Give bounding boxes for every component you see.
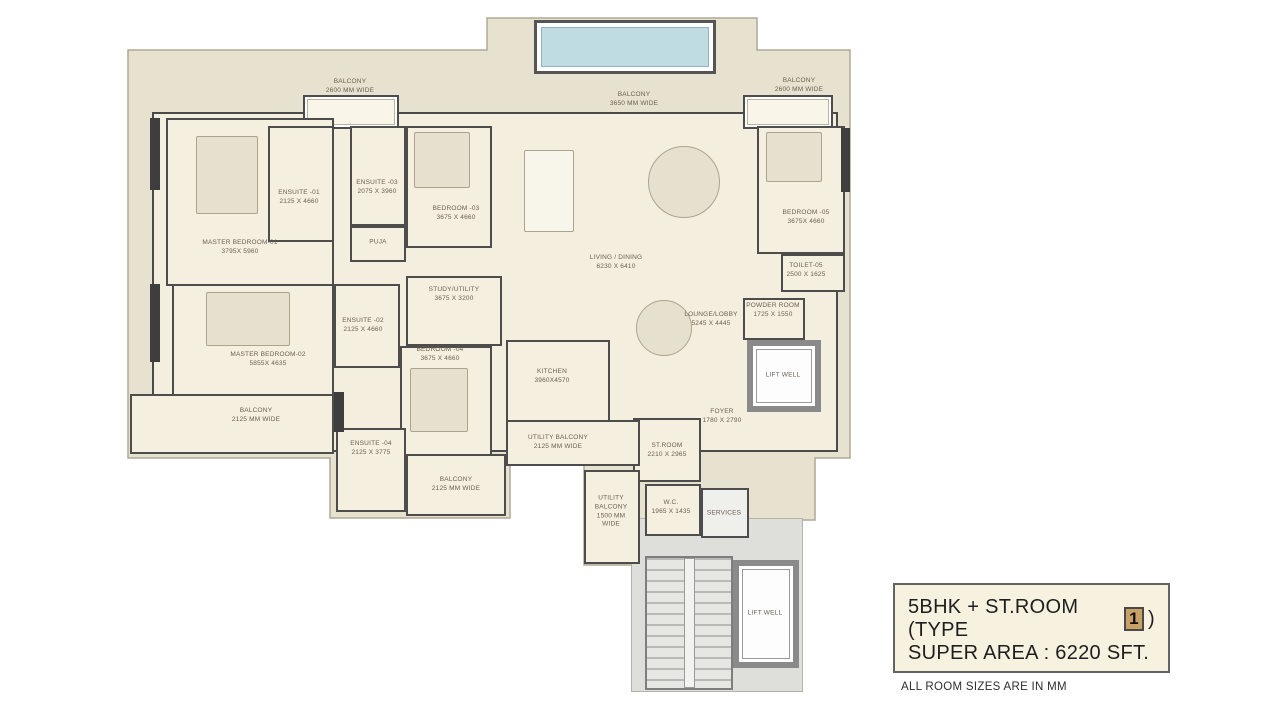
bed-icon [196, 136, 258, 214]
room-label-powder-room: POWDER ROOM1725 X 1550 [746, 302, 799, 320]
dining-table-icon [524, 150, 574, 232]
balcony-rail-top-right [743, 95, 833, 129]
room-ensuite-03 [350, 126, 406, 226]
room-label-bedroom-04: BEDROOM -043675 X 4660 [417, 346, 464, 364]
room-label-ensuite-04: ENSUITE -042125 X 3775 [350, 440, 392, 458]
sofa-icon [648, 146, 720, 218]
room-label-balcony-bottom-mid: BALCONY2125 MM WIDE [432, 476, 480, 494]
plan-info-box: 5BHK + ST.ROOM (TYPE 1 ) SUPER AREA : 62… [893, 583, 1170, 673]
room-label-ensuite-01: ENSUITE -012125 X 4660 [278, 189, 320, 207]
bed-icon [206, 292, 290, 346]
wall-segment [841, 128, 850, 192]
wall-segment [334, 392, 344, 432]
room-label-foyer: FOYER1780 X 2790 [702, 408, 741, 426]
type-number-badge: 1 [1124, 607, 1144, 631]
bed-icon [410, 368, 468, 432]
room-label-ensuite-03: ENSUITE -032075 X 3960 [356, 179, 398, 197]
room-label-ensuite-02: ENSUITE -022125 X 4660 [342, 317, 384, 335]
bed-icon [414, 132, 470, 188]
room-label-toilet-05: TOILET-052500 X 1625 [786, 262, 825, 280]
room-label-bedroom-03: BEDROOM -033675 X 4660 [433, 205, 480, 223]
wall-segment [150, 284, 160, 362]
room-label-utility-balcony: UTILITY BALCONY2125 MM WIDE [528, 434, 588, 452]
room-label-lift-well-lower: LIFT WELL [748, 610, 783, 619]
plan-footnote: ALL ROOM SIZES ARE IN MM [901, 681, 1067, 693]
bed-icon [766, 132, 822, 182]
plan-title: 5BHK + ST.ROOM (TYPE 1 ) [908, 596, 1155, 642]
room-label-lift-well-upper: LIFT WELL [766, 372, 801, 381]
room-label-master-bedroom-01: MASTER BEDROOM-013795X 5960 [202, 239, 277, 257]
room-label-balcony-top-center: BALCONY3650 MM WIDE [610, 91, 658, 109]
wall-segment [150, 118, 160, 190]
room-label-master-bedroom-02: MASTER BEDROOM-025855X 4635 [230, 351, 305, 369]
room-label-services: SERVICES [707, 510, 741, 519]
room-ensuite-01 [268, 126, 334, 242]
room-label-balcony-top-right: BALCONY2600 MM WIDE [775, 77, 823, 95]
room-label-living-dining: LIVING / DINING6230 X 6410 [590, 254, 642, 272]
pool [541, 27, 709, 67]
staircase [645, 556, 733, 690]
room-label-study-utility: STUDY/UTILITY3675 X 3200 [429, 286, 480, 304]
room-label-wc: W.C.1965 X 1435 [651, 499, 690, 517]
room-label-st-room: ST.ROOM2210 X 2965 [647, 442, 686, 460]
room-label-bedroom-05: BEDROOM -053675X 4660 [783, 209, 830, 227]
plan-title-prefix: 5BHK + ST.ROOM (TYPE [908, 596, 1120, 642]
room-label-balcony-top-left: BALCONY2600 MM WIDE [326, 78, 374, 96]
room-label-puja: PUJA [369, 239, 386, 248]
super-area-text: SUPER AREA : 6220 SFT. [908, 642, 1155, 665]
room-label-balcony-bottom-left: BALCONY2125 MM WIDE [232, 407, 280, 425]
room-label-utility-balcony-1500: UTILITY BALCONY1500 MM WIDE [587, 494, 635, 529]
floor-plan-canvas: MASTER BEDROOM-013795X 5960 ENSUITE -012… [0, 0, 1280, 720]
room-label-kitchen: KITCHEN3960X4570 [534, 368, 569, 386]
plan-title-suffix: ) [1148, 608, 1155, 631]
stair-landing-rail [684, 558, 695, 688]
room-label-lounge-lobby: LOUNGE/LOBBY5245 X 4445 [684, 311, 737, 329]
